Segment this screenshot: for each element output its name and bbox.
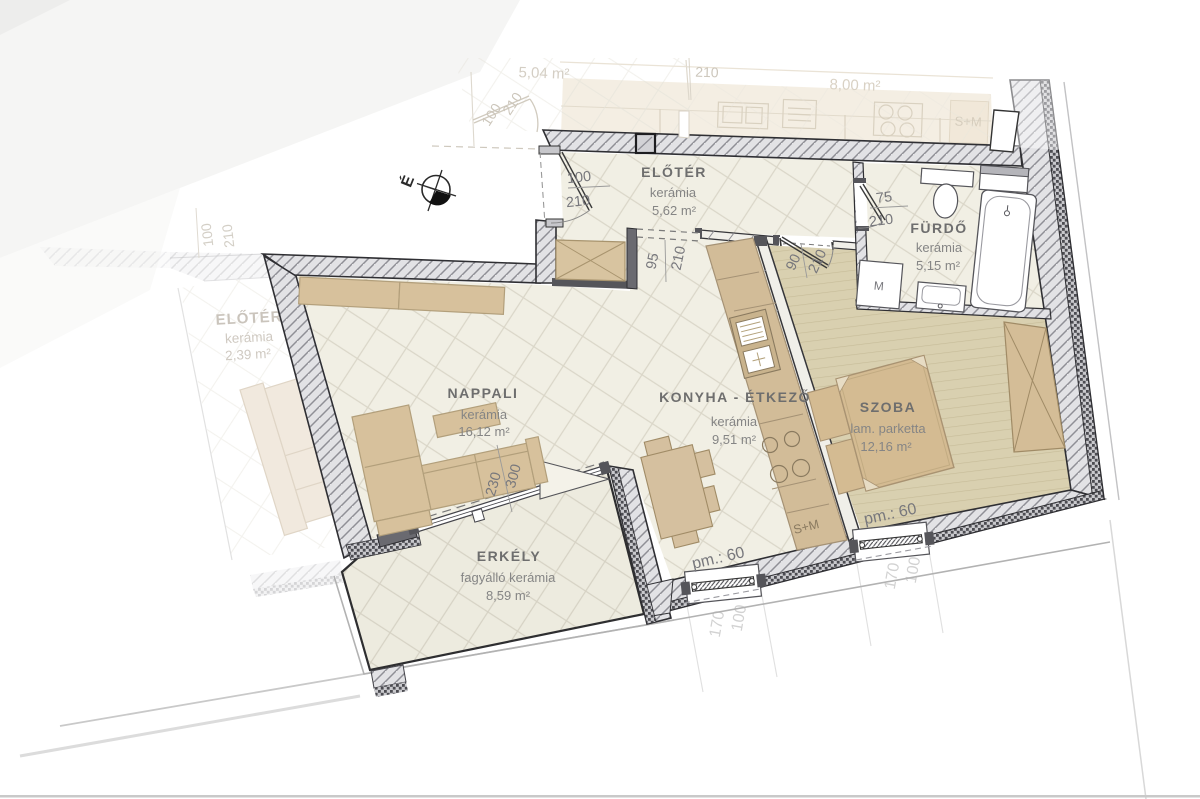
- svg-text:ELŐTÉR: ELŐTÉR: [641, 163, 707, 180]
- svg-text:NAPPALI: NAPPALI: [448, 385, 519, 401]
- svg-text:KONYHA - ÉTKEZŐ: KONYHA - ÉTKEZŐ: [659, 388, 811, 405]
- svg-text:210: 210: [695, 64, 719, 81]
- svg-text:16,12 m²: 16,12 m²: [458, 424, 510, 439]
- svg-text:kerámia: kerámia: [650, 185, 697, 200]
- svg-text:95: 95: [643, 252, 662, 271]
- svg-text:FÜRDŐ: FÜRDŐ: [910, 219, 967, 236]
- svg-text:kerámia: kerámia: [711, 414, 758, 429]
- svg-text:SZOBA: SZOBA: [860, 399, 917, 415]
- svg-text:210: 210: [219, 223, 238, 248]
- svg-text:fagyálló kerámia: fagyálló kerámia: [461, 570, 556, 585]
- svg-text:5,15 m²: 5,15 m²: [916, 258, 961, 273]
- svg-text:210: 210: [868, 212, 894, 231]
- svg-text:9,51 m²: 9,51 m²: [712, 432, 757, 447]
- svg-text:210: 210: [565, 193, 591, 211]
- svg-text:2,39 m²: 2,39 m²: [225, 346, 272, 363]
- svg-text:8,59 m²: 8,59 m²: [486, 588, 531, 603]
- svg-text:5,62 m²: 5,62 m²: [652, 203, 697, 218]
- svg-text:100: 100: [566, 169, 592, 187]
- svg-text:ERKÉLY: ERKÉLY: [477, 548, 542, 564]
- svg-text:kerámia: kerámia: [916, 240, 963, 255]
- svg-text:lam. parketta: lam. parketta: [850, 421, 926, 436]
- svg-text:ELŐTÉR: ELŐTÉR: [215, 307, 283, 328]
- svg-text:75: 75: [875, 189, 893, 207]
- svg-text:kerámia: kerámia: [225, 329, 274, 347]
- svg-text:M: M: [873, 279, 884, 294]
- svg-text:kerámia: kerámia: [461, 407, 508, 422]
- svg-text:12,16 m²: 12,16 m²: [860, 439, 912, 454]
- svg-text:100: 100: [198, 222, 217, 247]
